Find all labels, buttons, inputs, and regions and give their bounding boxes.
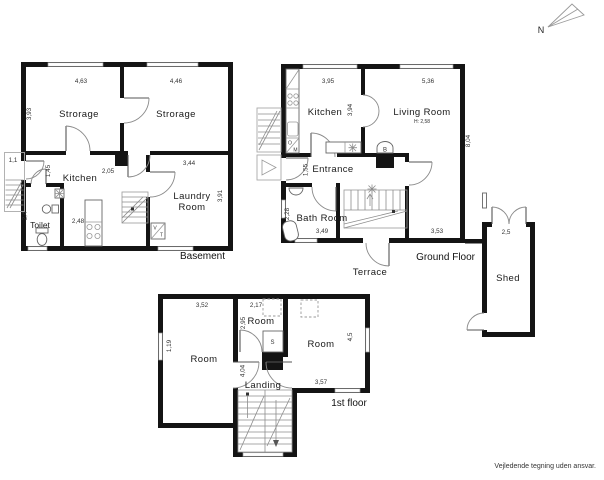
basement-windows	[28, 63, 198, 251]
room-label-toilet: Toilet	[30, 220, 50, 230]
dim-first-left-width: 3,52	[196, 302, 209, 309]
vent-icon	[368, 185, 377, 194]
first-floor-plan: S Room Room Room Landing 3,52 1,19 2,17 …	[158, 294, 370, 457]
shed-gate-post	[483, 193, 487, 208]
entrance-exterior-stair	[257, 108, 281, 152]
dim-first-middle-width: 2,17	[250, 302, 263, 309]
room-label-laundry-1: Laundry	[173, 191, 210, 202]
basement-title: Basement	[180, 251, 225, 262]
shed-plan: 2,5 Shed	[467, 193, 535, 337]
dim-hall-width: 2,05	[102, 168, 115, 175]
dim-landing-height: 4,04	[240, 364, 247, 377]
washer-dryer-icon: V T	[151, 223, 165, 239]
toilet-radiator-icon	[55, 189, 64, 198]
micro-label: M	[293, 148, 297, 154]
landing-label: Landing	[245, 380, 282, 391]
room-label-storage-left: Strorage	[59, 109, 99, 120]
dim-laundry-height: 3,91	[217, 189, 224, 202]
dim-ground-kitchen-width: 3,95	[322, 78, 335, 85]
boiler-icon: B	[377, 142, 393, 154]
living-height-note: H: 2,58	[414, 119, 430, 125]
room-label-first-right: Room	[308, 339, 335, 350]
dim-storage-left-height: 3,93	[26, 107, 33, 120]
dim-bath-height: 2,28	[284, 207, 291, 220]
dim-entrance-height: 1,55	[303, 163, 310, 176]
basement-plan: V T Strorage Strorage Kitchen Toilet Lau…	[5, 62, 234, 262]
room-label-living: Living Room	[393, 107, 450, 118]
closet: S	[263, 331, 283, 352]
ground-stairs	[344, 190, 407, 228]
dim-ground-kitchen-height: 3,94	[347, 103, 354, 116]
first-floor-title: 1st floor	[331, 398, 367, 409]
dim-storage-left-width: 4,63	[75, 78, 88, 85]
dim-shed-width: 2,5	[502, 229, 511, 236]
dim-first-left-height: 1,19	[166, 339, 173, 352]
shed-label: Shed	[496, 273, 520, 284]
room-label-basement-kitchen: Kitchen	[63, 173, 98, 184]
dim-living-height: 8,04	[465, 134, 472, 147]
basement-inner-stairs	[122, 192, 148, 223]
dim-toilet-height: 2,4	[22, 211, 29, 220]
dim-basement-kitchen-width: 2,48	[72, 218, 85, 225]
room-label-ground-kitchen: Kitchen	[308, 107, 343, 118]
skylight-markers	[263, 299, 318, 317]
first-floor-chimney	[262, 357, 283, 370]
basement-doors	[26, 98, 175, 197]
floor-plan-svg: V T Strorage Strorage Kitchen Toilet Lau…	[0, 0, 604, 480]
dim-living-bottom-width: 3,53	[431, 228, 444, 235]
oven-label: O	[288, 141, 292, 147]
dim-basement-kitchen-height: 1,45	[45, 164, 52, 177]
toilet-sink-icon	[42, 205, 58, 213]
room-label-storage-right: Strorage	[156, 109, 196, 120]
dim-living-width: 5,36	[422, 78, 435, 85]
shed-doors	[467, 207, 526, 330]
dim-storage-right-width: 4,46	[170, 78, 183, 85]
ground-floor-plan: B O M	[257, 64, 484, 278]
boiler-label: B	[383, 148, 387, 154]
toilet-wc-icon	[36, 228, 48, 246]
dim-bath-width: 3,49	[316, 228, 329, 235]
compass-north-label: N	[538, 25, 545, 35]
floor-plan-drawing: V T Strorage Strorage Kitchen Toilet Lau…	[0, 0, 604, 480]
room-label-first-middle: Room	[248, 316, 275, 327]
room-label-bath: Bath Room	[296, 213, 347, 224]
first-floor-stairs	[238, 390, 292, 452]
dim-first-middle-height: 2,95	[240, 316, 247, 329]
ground-floor-title: Ground Floor	[416, 252, 476, 263]
basement-kitchen-counter	[85, 200, 102, 246]
ground-chimney	[376, 155, 394, 168]
bath-sink-icon	[289, 188, 303, 195]
dim-laundry-width: 3,44	[183, 160, 196, 167]
room-label-first-left: Room	[191, 354, 218, 365]
dim-entry-stair-width: 1,1	[9, 157, 18, 164]
dim-first-right-width: 3,57	[315, 379, 328, 386]
compass: N	[538, 4, 584, 35]
room-label-laundry-2: Room	[179, 202, 206, 213]
footer-note: Vejledende tegning uden ansvar.	[494, 463, 596, 470]
dryer-label: T	[160, 233, 163, 239]
entrance-direction-marker	[257, 155, 281, 180]
closet-label: S	[270, 340, 274, 346]
room-label-entrance: Entrance	[312, 164, 353, 175]
basement-chimney	[115, 151, 128, 166]
terrace-label: Terrace	[353, 267, 387, 278]
dim-first-right-height: 4,5	[347, 332, 354, 341]
